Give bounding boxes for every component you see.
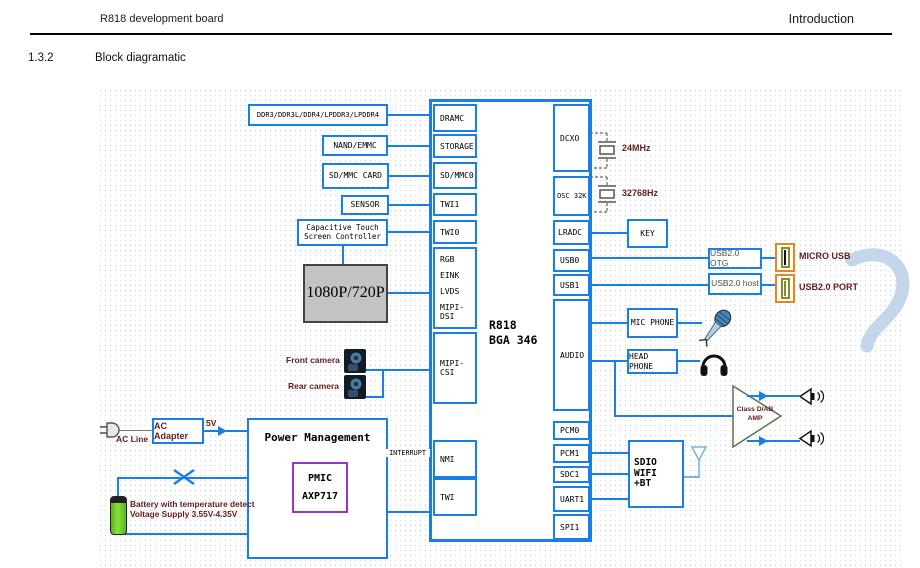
chip-port-twi1: TWI1 (433, 193, 477, 216)
wire (388, 231, 429, 233)
battery-cap (111, 497, 126, 503)
microphone-icon (697, 307, 735, 349)
header-right: Introduction (789, 12, 854, 26)
usb-connector-shell (781, 247, 790, 268)
section-number: 1.3.2 (28, 52, 54, 64)
wire (117, 477, 119, 498)
headphones-icon (699, 346, 729, 379)
chip-name: R818 BGA 346 (489, 318, 537, 348)
wire (590, 257, 708, 259)
usb-port-label: USB2.0 PORT (799, 282, 858, 292)
chip-port-usb0: USB0 (553, 249, 590, 272)
power-management-title: Power Management (252, 431, 383, 444)
battery-label-line1: Battery with temperature detect (130, 499, 255, 509)
chip-port-dramc: DRAMC (433, 104, 477, 132)
chip-port-rgb: RGB (440, 255, 454, 264)
wire (382, 369, 384, 398)
block-key: KEY (627, 219, 668, 248)
header-rule (30, 33, 892, 35)
chip-port-dcxo: DCXO (553, 104, 590, 172)
chip-port-sdmmc0: SD/MMC0 (433, 162, 477, 189)
chip-port-sdc1: SDC1 (553, 466, 590, 483)
chip-port-spi1: SPI1 (553, 514, 590, 540)
chip-port-twi: TWI (433, 478, 477, 516)
camera-icon (344, 375, 366, 399)
usb-connector-icon (775, 243, 795, 272)
front-camera-label: Front camera (286, 355, 340, 365)
wire (590, 360, 627, 362)
block-dram: DDR3/DDR3L/DDR4/LPDDR3/LPDDR4 (248, 104, 388, 126)
wire (614, 415, 736, 417)
block-sensor: SENSOR (341, 195, 389, 215)
wire (388, 145, 429, 147)
chip-port-eink: EINK (440, 271, 459, 280)
wire (117, 533, 247, 535)
amp-label-line1: Class D/AB (733, 406, 777, 415)
block-mic-phone: MIC PHONE (627, 308, 678, 338)
wire (119, 430, 152, 431)
block-sdio-wifi-bt: SDIO WIFI +BT (628, 440, 684, 508)
battery-icon (110, 496, 127, 535)
header-left: R818 development board (100, 13, 224, 25)
wire (366, 369, 429, 371)
usb-connector-pin (784, 281, 786, 296)
chip-port-lradc: LRADC (553, 220, 590, 245)
chip-port-storage: STORAGE (433, 134, 477, 158)
chip-port-pcm1: PCM1 (553, 444, 590, 463)
block-usb-otg: USB2.0 OTG (708, 248, 762, 269)
amp-label-line2: AMP (733, 415, 777, 424)
chip-port-mipi-dsi: MIPI-DSI (440, 303, 475, 321)
5v-rail-label: 5V (206, 418, 216, 428)
sdio-label-line2: +BT (634, 479, 651, 490)
wire (388, 114, 429, 116)
wire (342, 246, 344, 265)
arrow-icon (759, 391, 768, 401)
chip-name-line2: BGA 346 (489, 333, 537, 348)
arrow-icon (218, 426, 227, 436)
speaker-icon (798, 387, 824, 406)
chip-port-lvds: LVDS (440, 287, 459, 296)
crystal-32k-label: 32768Hz (622, 188, 658, 198)
chip-port-twi0: TWI0 (433, 220, 477, 244)
block-ac-adapter: AC Adapter (152, 418, 204, 444)
block-display-panel: 1080P/720P (303, 264, 388, 323)
crystal-icon (590, 126, 624, 176)
ac-line-label: AC Line (116, 434, 148, 444)
touch-label-line2: Screen Controller (304, 233, 381, 242)
battery-label-line2: Voltage Supply 3.55V-4.35V (130, 509, 237, 519)
amp-label: Class D/AB AMP (733, 406, 777, 424)
document-page: R818 development board Introduction 1.3.… (0, 0, 920, 568)
wire (747, 395, 800, 397)
wire (747, 440, 800, 442)
pmic-label-line1: PMIC (308, 473, 332, 485)
wire (590, 498, 628, 500)
pmic-label-line2: AXP717 (302, 491, 338, 503)
chip-port-audio: AUDIO (553, 299, 590, 411)
wire (590, 452, 628, 454)
block-usb-host: USB2.0 host (708, 273, 762, 295)
sdio-label-line1: SDIO WIFI (634, 458, 682, 480)
camera-icon (344, 349, 366, 373)
wire (388, 292, 429, 294)
chip-port-osc32k: OSC 32K (553, 176, 590, 216)
block-nand-emmc: NAND/EMMC (322, 135, 388, 156)
wire (590, 284, 708, 286)
speaker-icon (798, 429, 824, 448)
chip-port-pcm0: PCM0 (553, 421, 590, 440)
block-touch-controller: Capacitive Touch Screen Controller (297, 219, 388, 246)
crystal-24mhz-label: 24MHz (622, 143, 651, 153)
wire (389, 175, 429, 177)
chip-name-line1: R818 (489, 318, 537, 333)
chip-port-nmi: NMI (433, 440, 477, 478)
usb-connector-pin (784, 250, 786, 265)
chip-port-display-group: RGB EINK LVDS MIPI-DSI (433, 247, 477, 329)
chip-port-uart1: UART1 (553, 486, 590, 512)
usb-connector-shell (781, 278, 790, 299)
chip-port-usb1: USB1 (553, 274, 590, 296)
block-pmic: PMIC AXP717 (292, 462, 348, 513)
antenna-icon (691, 446, 709, 480)
interrupt-label: INTERRUPT (385, 449, 430, 457)
wire (388, 511, 429, 513)
wire (684, 476, 700, 478)
rear-camera-label: Rear camera (288, 381, 339, 391)
crystal-icon (590, 170, 624, 220)
chip-port-mipi-csi: MIPI-CSI (433, 332, 477, 404)
wire (762, 257, 775, 259)
section-title: Block diagramatic (95, 52, 186, 64)
wire (389, 204, 429, 206)
micro-usb-label: MICRO USB (799, 251, 851, 261)
wire (590, 473, 628, 475)
block-head-phone: HEAD PHONE (627, 349, 678, 374)
block-sd-card: SD/MMC CARD (322, 163, 389, 189)
arrow-icon (759, 436, 768, 446)
bidirectional-arrow-icon (172, 468, 196, 486)
wire (614, 360, 616, 417)
wire (590, 232, 627, 234)
usb-connector-icon (775, 274, 795, 303)
wire (678, 360, 700, 362)
wire (590, 322, 627, 324)
wire (762, 284, 775, 286)
